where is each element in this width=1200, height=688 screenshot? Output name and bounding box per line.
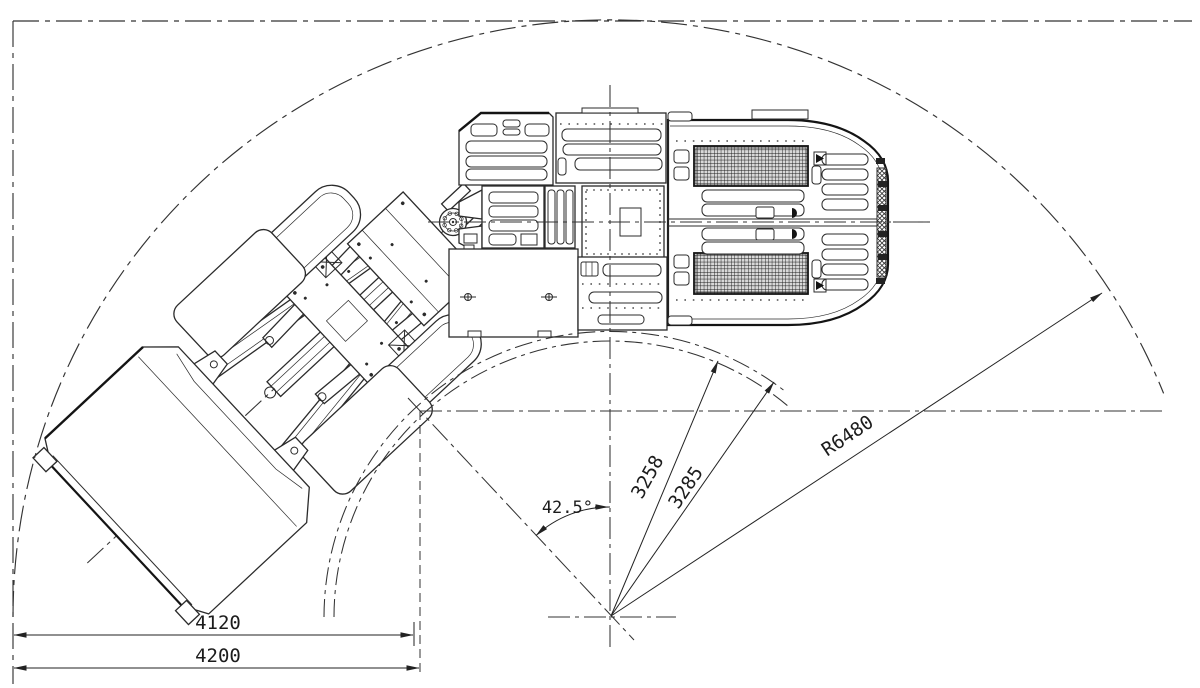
turning-clearance-drawing: 4120 4200 42.5° 3258 3285 R6480 [0, 0, 1200, 688]
radiator-grille-bottom [694, 253, 808, 294]
latch [756, 207, 774, 218]
dim-angle-label: 42.5° [542, 498, 593, 518]
vent-slot [674, 272, 689, 285]
vent-slot [489, 234, 516, 245]
vent-slot [466, 169, 547, 180]
vent-slot [563, 144, 661, 155]
vent-slot [557, 190, 564, 244]
engine-deck [668, 110, 930, 325]
articulation-angle-line [408, 398, 634, 640]
vent-slot [598, 315, 644, 324]
vent-slot [548, 190, 555, 244]
vent-slot [489, 206, 538, 217]
dim-4120-label: 4120 [195, 612, 241, 634]
radiator-grille-top [694, 146, 808, 186]
platform-foot [538, 331, 551, 337]
deck-tab [668, 112, 692, 121]
dim-aisle-width-outer: 4200 [14, 645, 419, 668]
vent-slot [489, 192, 538, 203]
hood-block-mid-top [556, 108, 666, 183]
dim-R6480-label: R6480 [818, 411, 878, 461]
nose-detail-box [464, 234, 477, 243]
vent-slot [466, 156, 547, 167]
deck-strip [752, 110, 808, 119]
vent-slot [702, 204, 804, 216]
vent-slot [562, 129, 661, 141]
vent-slot [575, 158, 662, 170]
vent-slot [566, 190, 573, 244]
vent-slot [674, 167, 689, 180]
hood-block-top-left [459, 113, 553, 185]
rear-platform [449, 249, 578, 337]
vent-slot [558, 158, 566, 175]
dim-3285-label: 3285 [664, 463, 708, 513]
vent-slot [521, 234, 537, 245]
vent-slot [674, 255, 689, 268]
vent-slot [702, 242, 804, 254]
vent-block-left-mid [482, 186, 544, 248]
vent-slot [674, 150, 689, 163]
platform-foot [468, 331, 481, 337]
vent-slot [603, 264, 661, 276]
hood-block-bottom-mid [578, 257, 667, 330]
vertical-slots-block [545, 186, 575, 248]
vent-slot [589, 292, 662, 303]
vent-slot [702, 190, 804, 202]
dim-articulation-angle: 42.5° [536, 498, 610, 536]
dim-4200-label: 4200 [195, 645, 241, 667]
dim-aisle-width-inner: 4120 [14, 612, 413, 635]
dim-inner-radius-a: 3258 [611, 361, 718, 616]
dim-inner-radius-b: 3285 [611, 382, 774, 616]
engineering-drawing-page: 4120 4200 42.5° 3258 3285 R6480 [0, 0, 1200, 688]
latch [756, 229, 774, 240]
deck-tab [668, 316, 692, 325]
vent-slot [702, 228, 804, 240]
vent-slot [466, 141, 547, 153]
